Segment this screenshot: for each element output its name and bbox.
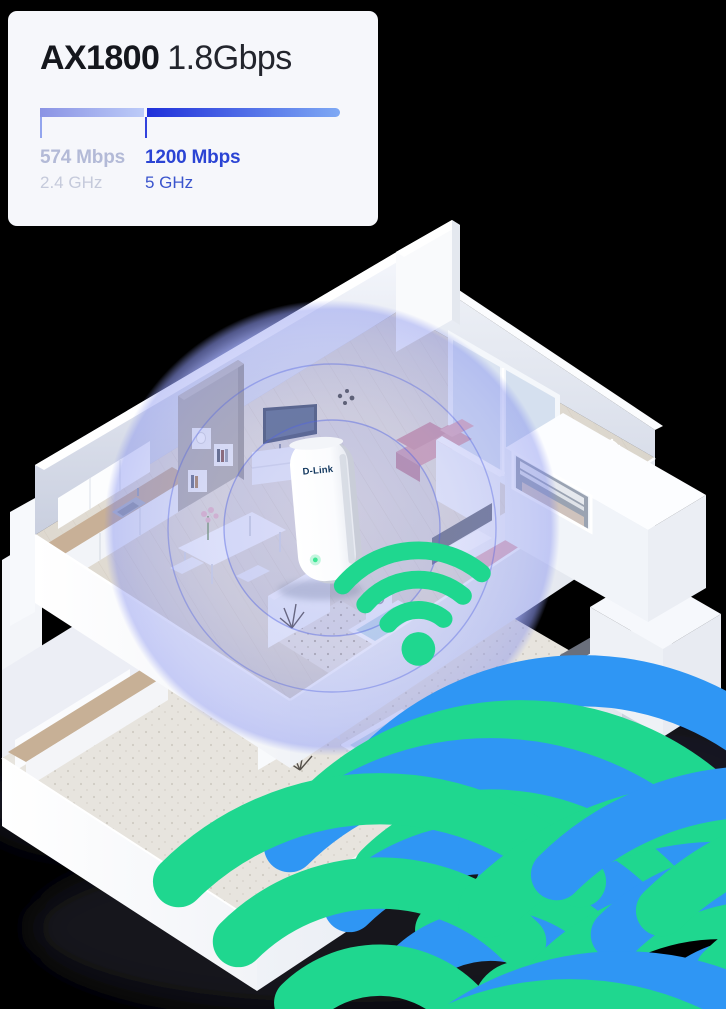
bar-tick-5ghz xyxy=(145,117,147,138)
bar-tick-2ghz xyxy=(40,117,42,138)
speed-bar xyxy=(40,108,340,117)
band-5ghz-label: 1200 Mbps 5 GHz xyxy=(145,147,240,193)
band-2ghz-frequency: 2.4 GHz xyxy=(40,173,145,193)
band-2ghz-label: 574 Mbps 2.4 GHz xyxy=(40,147,145,193)
band-5ghz-speed: 1200 Mbps xyxy=(145,147,240,169)
bar-segment-2ghz xyxy=(40,108,144,117)
total-speed: 1.8Gbps xyxy=(167,39,291,77)
card-title: AX18001.8Gbps xyxy=(40,39,292,78)
screenshot-root: D-Link AX18001.8Gbps 574 Mbps 2.4 GHz 12… xyxy=(0,0,726,1009)
band-labels: 574 Mbps 2.4 GHz 1200 Mbps 5 GHz xyxy=(40,147,240,193)
bar-segment-5ghz xyxy=(147,108,341,117)
speed-spec-card: AX18001.8Gbps 574 Mbps 2.4 GHz 1200 Mbps… xyxy=(8,11,378,226)
band-5ghz-frequency: 5 GHz xyxy=(145,173,240,193)
band-2ghz-speed: 574 Mbps xyxy=(40,147,145,169)
model-name: AX1800 xyxy=(40,39,159,77)
